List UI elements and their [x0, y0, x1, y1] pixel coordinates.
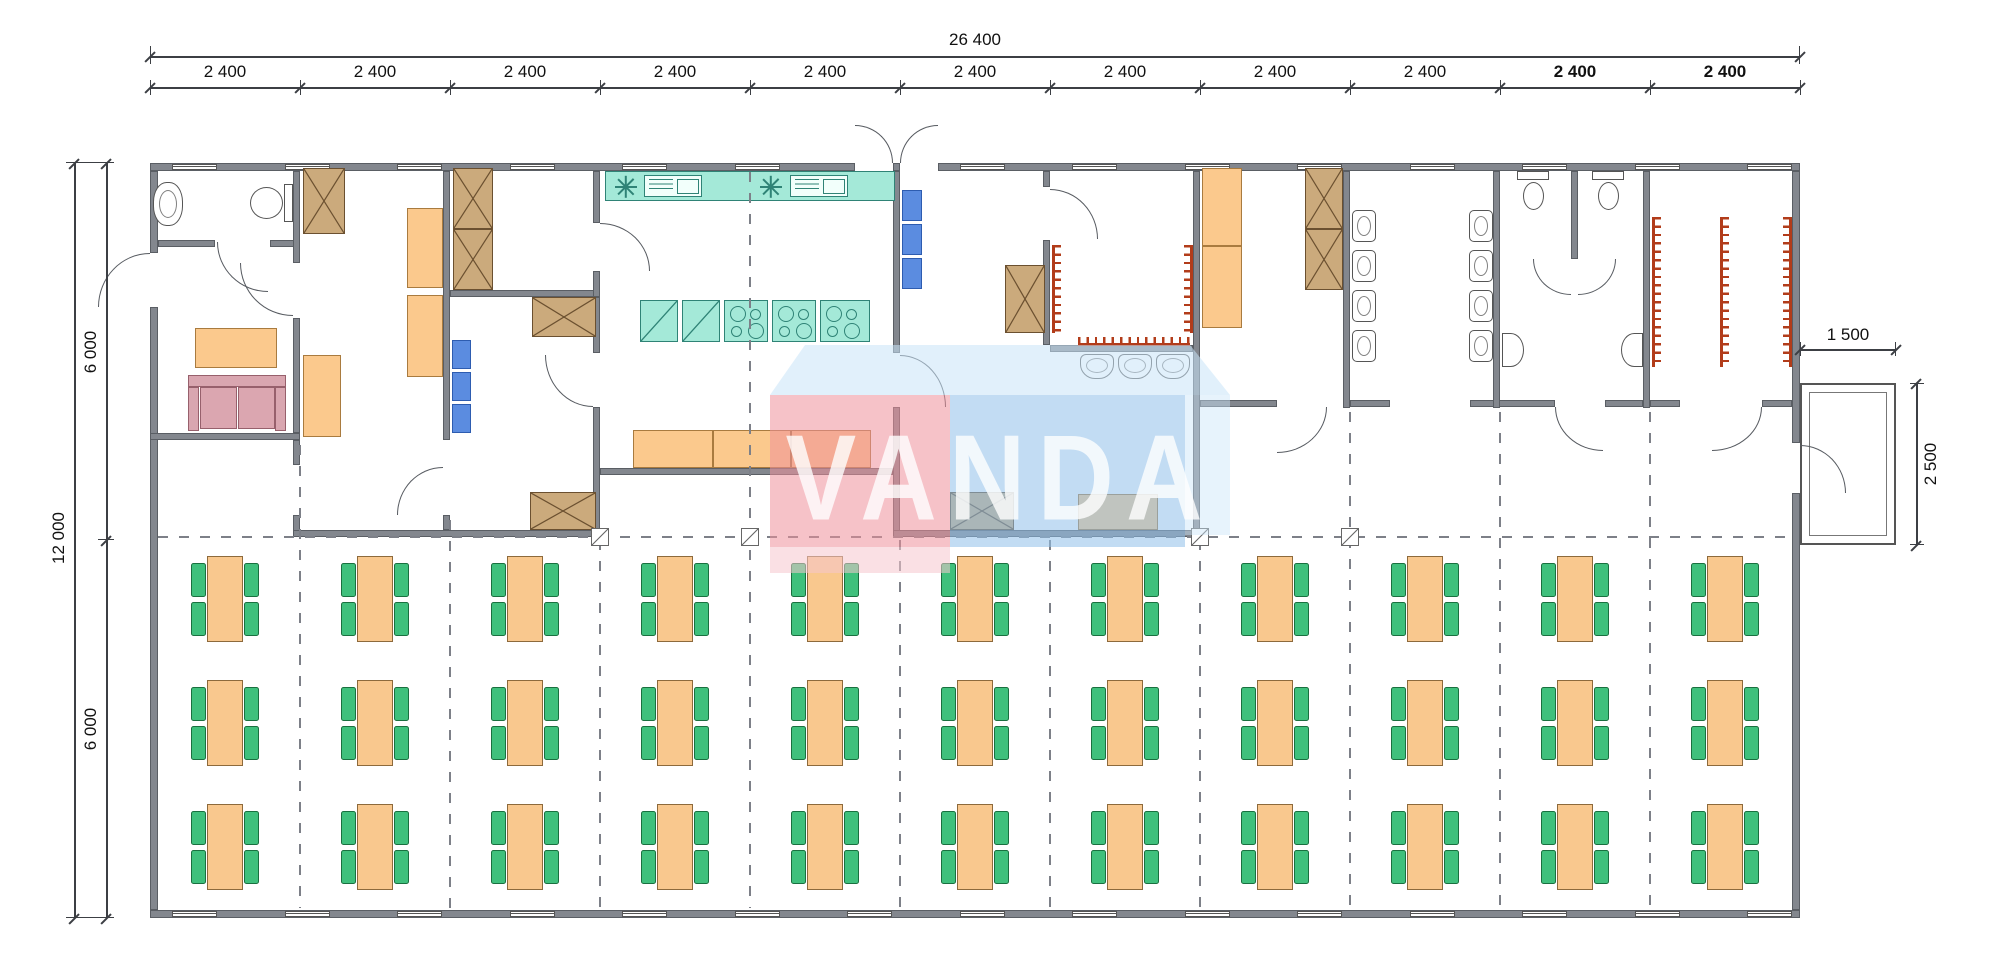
- window: [510, 911, 555, 917]
- wall: [593, 271, 600, 297]
- dimension-stub: [1650, 80, 1651, 95]
- dining-table: [1707, 804, 1743, 890]
- window: [1635, 164, 1680, 170]
- dining-table: [507, 680, 543, 766]
- urinal-bowl: [1474, 296, 1488, 316]
- lamp-asterisk-icon: [760, 175, 782, 197]
- wall: [1350, 400, 1390, 407]
- coat-rack-icon: [1052, 245, 1061, 333]
- dining-chair: [1594, 726, 1609, 760]
- dining-chair: [341, 687, 356, 721]
- dining-chair: [641, 811, 656, 845]
- dining-chair: [1594, 563, 1609, 597]
- kitchen-sink-icon: [790, 175, 848, 197]
- dining-chair: [191, 563, 206, 597]
- shelf-unit: [902, 258, 922, 289]
- shelf-unit: [452, 404, 471, 433]
- dining-table: [1407, 804, 1443, 890]
- dimension-label-segment: 2 400: [1050, 63, 1200, 81]
- dimension-stub: [300, 80, 301, 95]
- dining-chair: [1541, 850, 1556, 884]
- shelf-unit: [902, 190, 922, 221]
- dining-chair: [1391, 726, 1406, 760]
- dining-table: [1107, 680, 1143, 766]
- dining-chair: [1091, 726, 1106, 760]
- dimension-label-porch-width: 1 500: [1791, 326, 1905, 344]
- wall: [293, 171, 300, 263]
- cabinet: [1202, 168, 1242, 246]
- window: [172, 164, 217, 170]
- dining-table: [507, 804, 543, 890]
- dining-chair: [1391, 687, 1406, 721]
- dining-chair: [191, 687, 206, 721]
- dining-chair: [491, 687, 506, 721]
- dining-chair: [191, 726, 206, 760]
- dining-chair: [1541, 602, 1556, 636]
- dining-chair: [491, 563, 506, 597]
- dining-chair: [244, 602, 259, 636]
- wall: [1043, 171, 1050, 187]
- watermark-band: [770, 345, 1230, 395]
- cabinet: [407, 295, 443, 377]
- watermark-logo-text: VANDA: [770, 398, 1230, 559]
- toilet-icon: [250, 187, 283, 219]
- dining-chair: [641, 563, 656, 597]
- door-arc-office-hall: [397, 467, 443, 515]
- dining-chair: [341, 850, 356, 884]
- dining-chair: [191, 850, 206, 884]
- window: [1522, 164, 1567, 170]
- toilet-icon: [1598, 182, 1619, 210]
- dimension-label-lower-half: 6 000: [82, 679, 102, 779]
- dimension-label-porch-depth: 2 500: [1922, 414, 1942, 514]
- dining-table: [657, 680, 693, 766]
- dining-chair: [1294, 687, 1309, 721]
- dining-chair: [694, 602, 709, 636]
- dining-chair: [1091, 687, 1106, 721]
- wall: [593, 171, 600, 223]
- dining-chair: [244, 687, 259, 721]
- dining-chair: [191, 602, 206, 636]
- window: [847, 911, 892, 917]
- dining-chair: [941, 850, 956, 884]
- dining-chair: [994, 811, 1009, 845]
- window: [1522, 911, 1567, 917]
- dimension-line-total-height: [74, 163, 76, 918]
- window: [960, 164, 1005, 170]
- window: [1185, 911, 1230, 917]
- coat-rack-icon: [1652, 217, 1661, 367]
- dining-chair: [1541, 563, 1556, 597]
- dimension-line-porch-width: [1800, 349, 1896, 351]
- dining-table: [1107, 804, 1143, 890]
- window: [1635, 911, 1680, 917]
- toilet-tank: [1592, 171, 1624, 180]
- window: [510, 164, 555, 170]
- urinal-bowl: [1357, 216, 1371, 236]
- sink-icon: [1502, 333, 1524, 367]
- dining-chair: [1091, 811, 1106, 845]
- wall: [150, 307, 158, 910]
- dining-chair: [1294, 850, 1309, 884]
- dining-chair: [244, 563, 259, 597]
- sink-basin: [159, 190, 177, 218]
- wardrobe-icon: [1005, 265, 1045, 333]
- dining-table: [657, 804, 693, 890]
- dining-table: [357, 680, 393, 766]
- window: [1297, 911, 1342, 917]
- dining-chair: [544, 850, 559, 884]
- dining-chair: [1744, 602, 1759, 636]
- dimension-line-segments: [150, 87, 1800, 89]
- dimension-label-segment: 2 400: [1650, 63, 1800, 81]
- door-arc-stall-1: [1533, 259, 1571, 295]
- window: [735, 164, 780, 170]
- window: [622, 164, 667, 170]
- wall: [150, 433, 300, 440]
- dining-chair: [1091, 602, 1106, 636]
- dining-chair: [844, 850, 859, 884]
- dining-chair: [641, 687, 656, 721]
- dining-table: [957, 804, 993, 890]
- dining-chair: [394, 726, 409, 760]
- dining-chair: [1691, 687, 1706, 721]
- dining-chair: [1691, 563, 1706, 597]
- dining-table: [1257, 680, 1293, 766]
- dining-table: [207, 680, 243, 766]
- dining-table: [1257, 804, 1293, 890]
- dining-chair: [1691, 850, 1706, 884]
- dining-table: [957, 680, 993, 766]
- stove-icon: [724, 300, 768, 342]
- dimension-label-segment: 2 400: [900, 63, 1050, 81]
- window: [1747, 164, 1792, 170]
- dining-table: [357, 556, 393, 642]
- sofa-back: [188, 375, 286, 387]
- dining-chair: [1744, 563, 1759, 597]
- grid-line: [1499, 412, 1501, 908]
- dining-chair: [1444, 850, 1459, 884]
- dining-chair: [394, 563, 409, 597]
- stove-icon: [772, 300, 816, 342]
- stove-icon: [820, 300, 870, 342]
- door-arc-main-entrance-right: [900, 125, 938, 163]
- door-arc-stall-2: [1578, 259, 1616, 295]
- window: [397, 911, 442, 917]
- wardrobe-icon: [1305, 229, 1343, 290]
- sofa-armrest: [188, 387, 199, 431]
- dimension-label-segment: 2 400: [1200, 63, 1350, 81]
- dining-chair: [1144, 726, 1159, 760]
- grid-line: [1649, 412, 1651, 908]
- door-arc-annex: [545, 355, 593, 407]
- dining-chair: [1594, 602, 1609, 636]
- dimension-stub: [600, 80, 601, 95]
- dining-chair: [244, 811, 259, 845]
- window: [1747, 911, 1792, 917]
- dimension-stub: [450, 80, 451, 95]
- dining-chair: [1241, 687, 1256, 721]
- dining-chair: [1691, 726, 1706, 760]
- dining-chair: [1541, 726, 1556, 760]
- coat-rack-icon: [1783, 217, 1792, 367]
- window: [735, 911, 780, 917]
- grid-line: [1199, 540, 1201, 908]
- dimension-stub: [900, 80, 901, 95]
- shelf-unit: [452, 372, 471, 401]
- dining-chair: [1144, 850, 1159, 884]
- dining-chair: [941, 811, 956, 845]
- dining-chair: [394, 687, 409, 721]
- dining-chair: [844, 687, 859, 721]
- dining-chair: [791, 687, 806, 721]
- dining-table: [657, 556, 693, 642]
- window: [172, 911, 217, 917]
- dining-chair: [1391, 602, 1406, 636]
- column-marker: [741, 528, 759, 546]
- dining-chair: [544, 811, 559, 845]
- wall: [1605, 400, 1643, 407]
- urinal-bowl: [1357, 336, 1371, 356]
- fridge-icon: [682, 300, 720, 342]
- dimension-stub: [1050, 80, 1051, 95]
- wardrobe-icon: [303, 168, 345, 234]
- shelf-unit: [902, 224, 922, 255]
- dining-chair: [941, 726, 956, 760]
- dimension-label-total-width: 26 400: [860, 31, 1090, 51]
- dimension-stub: [1500, 80, 1501, 95]
- dimension-label-segment: 2 400: [450, 63, 600, 81]
- dining-chair: [791, 811, 806, 845]
- dining-chair: [544, 687, 559, 721]
- dining-chair: [1594, 850, 1609, 884]
- wall: [1643, 171, 1650, 408]
- wardrobe-icon: [453, 168, 493, 229]
- dining-table: [1107, 556, 1143, 642]
- dining-chair: [1144, 602, 1159, 636]
- wall: [158, 240, 215, 247]
- cabinet: [407, 208, 443, 288]
- dining-chair: [1241, 811, 1256, 845]
- door-arc-serving-cloak: [1050, 189, 1098, 239]
- dining-table: [807, 804, 843, 890]
- dining-table: [207, 804, 243, 890]
- dimension-stub: [1800, 80, 1801, 95]
- dining-chair: [994, 687, 1009, 721]
- dining-chair: [394, 602, 409, 636]
- dining-chair: [1091, 850, 1106, 884]
- dining-chair: [544, 602, 559, 636]
- wardrobe-icon: [453, 229, 493, 290]
- dining-table: [1707, 680, 1743, 766]
- wardrobe-icon: [532, 297, 596, 337]
- door-arc-washroom-hall: [1555, 407, 1603, 451]
- dining-chair: [1391, 850, 1406, 884]
- dining-chair: [491, 850, 506, 884]
- dining-chair: [491, 811, 506, 845]
- dining-table: [357, 804, 393, 890]
- wall: [443, 171, 450, 440]
- window: [960, 911, 1005, 917]
- wall: [1493, 171, 1500, 408]
- dining-chair: [1144, 687, 1159, 721]
- dining-chair: [1744, 850, 1759, 884]
- urinal-bowl: [1474, 336, 1488, 356]
- dining-chair: [1444, 687, 1459, 721]
- dining-chair: [1691, 602, 1706, 636]
- dimension-label-segment: 2 400: [1500, 63, 1650, 81]
- dining-chair: [1444, 726, 1459, 760]
- dining-chair: [1594, 687, 1609, 721]
- window: [1410, 164, 1455, 170]
- dining-chair: [844, 602, 859, 636]
- dining-chair: [244, 726, 259, 760]
- dining-chair: [1744, 687, 1759, 721]
- dining-chair: [341, 726, 356, 760]
- dimension-label-segment: 2 400: [1350, 63, 1500, 81]
- dining-chair: [694, 687, 709, 721]
- column-marker: [591, 528, 609, 546]
- dining-table: [1557, 556, 1593, 642]
- toilet-tank: [1517, 171, 1549, 180]
- dining-chair: [394, 850, 409, 884]
- dimension-stub: [150, 80, 151, 95]
- sofa-armrest: [275, 387, 286, 431]
- dimension-line-porch-depth: [1916, 383, 1918, 545]
- dining-chair: [1691, 811, 1706, 845]
- dining-chair: [1541, 687, 1556, 721]
- dining-chair: [1744, 811, 1759, 845]
- dining-chair: [1144, 563, 1159, 597]
- wardrobe-icon: [1305, 168, 1343, 229]
- toilet-tank: [284, 184, 293, 222]
- dimension-label-segment: 2 400: [150, 63, 300, 81]
- dining-chair: [1391, 563, 1406, 597]
- door-arc-main-entrance-left: [855, 125, 893, 163]
- dining-chair: [1444, 811, 1459, 845]
- dining-chair: [694, 726, 709, 760]
- urinal-bowl: [1474, 216, 1488, 236]
- dining-chair: [1444, 602, 1459, 636]
- wall: [1343, 171, 1350, 408]
- dining-chair: [791, 850, 806, 884]
- dining-table: [507, 556, 543, 642]
- urinal-bowl: [1474, 256, 1488, 276]
- cabinet: [195, 328, 277, 368]
- dining-chair: [1144, 811, 1159, 845]
- urinal-bowl: [1357, 296, 1371, 316]
- dining-chair: [1241, 726, 1256, 760]
- sink-icon: [1621, 333, 1643, 367]
- dining-chair: [1241, 602, 1256, 636]
- dining-chair: [1241, 850, 1256, 884]
- dining-table: [1407, 680, 1443, 766]
- dining-chair: [1541, 811, 1556, 845]
- wall: [1792, 171, 1800, 443]
- kitchen-lower-counter: [633, 430, 713, 468]
- dining-chair: [491, 726, 506, 760]
- door-arc-storage2-hall: [1277, 407, 1327, 453]
- dining-chair: [1444, 563, 1459, 597]
- dining-chair: [641, 850, 656, 884]
- dimension-stub: [1350, 80, 1351, 95]
- door-arc-lounge-office: [240, 263, 293, 316]
- dining-chair: [341, 563, 356, 597]
- dining-chair: [1594, 811, 1609, 845]
- dining-chair: [1294, 563, 1309, 597]
- dining-table: [1557, 804, 1593, 890]
- grid-line: [1049, 540, 1051, 908]
- dining-chair: [694, 850, 709, 884]
- dining-chair: [1294, 811, 1309, 845]
- coat-rack-icon: [1078, 337, 1190, 346]
- sofa-seat: [200, 387, 237, 429]
- coat-rack-icon: [1720, 217, 1729, 367]
- wall: [893, 163, 900, 171]
- dining-chair: [544, 563, 559, 597]
- dimension-stub: [750, 80, 751, 95]
- dining-table: [1257, 556, 1293, 642]
- dining-chair: [1241, 563, 1256, 597]
- wall: [1571, 171, 1578, 259]
- dimension-label-segment: 2 400: [300, 63, 450, 81]
- dining-chair: [994, 850, 1009, 884]
- coat-rack-icon: [1184, 245, 1193, 333]
- dining-chair: [994, 726, 1009, 760]
- fridge-icon: [640, 300, 678, 342]
- dining-chair: [1294, 602, 1309, 636]
- dining-table: [1707, 556, 1743, 642]
- dining-chair: [844, 726, 859, 760]
- sofa-seat: [238, 387, 275, 429]
- floor-plan-canvas: 26 400 12 000 6 000 6 000 1 500 2 500 2 …: [0, 0, 2000, 975]
- dimension-line-total-width: [150, 56, 1800, 58]
- wall: [1650, 400, 1680, 407]
- window: [397, 164, 442, 170]
- dining-chair: [544, 726, 559, 760]
- cabinet: [303, 355, 341, 437]
- dining-chair: [694, 563, 709, 597]
- dining-chair: [694, 811, 709, 845]
- grid-line: [449, 520, 451, 908]
- dimension-stub: [1200, 80, 1201, 95]
- dining-table: [1407, 556, 1443, 642]
- dining-chair: [994, 602, 1009, 636]
- dimension-label-segment: 2 400: [600, 63, 750, 81]
- dining-chair: [341, 811, 356, 845]
- dining-chair: [941, 602, 956, 636]
- window: [285, 911, 330, 917]
- wall: [1470, 400, 1555, 407]
- dining-chair: [791, 726, 806, 760]
- window: [1072, 911, 1117, 917]
- dining-chair: [341, 602, 356, 636]
- grid-line: [299, 445, 301, 908]
- dining-chair: [994, 563, 1009, 597]
- dining-chair: [1091, 563, 1106, 597]
- dining-chair: [1294, 726, 1309, 760]
- door-arc-cloakroom-hall: [1712, 407, 1762, 451]
- grid-line: [899, 540, 901, 908]
- dining-chair: [1391, 811, 1406, 845]
- wall: [293, 318, 300, 433]
- grid-line: [599, 540, 601, 908]
- kitchen-sink-icon: [644, 175, 702, 197]
- dining-table: [1557, 680, 1593, 766]
- grid-line: [1349, 412, 1351, 908]
- window: [1410, 911, 1455, 917]
- window: [1072, 164, 1117, 170]
